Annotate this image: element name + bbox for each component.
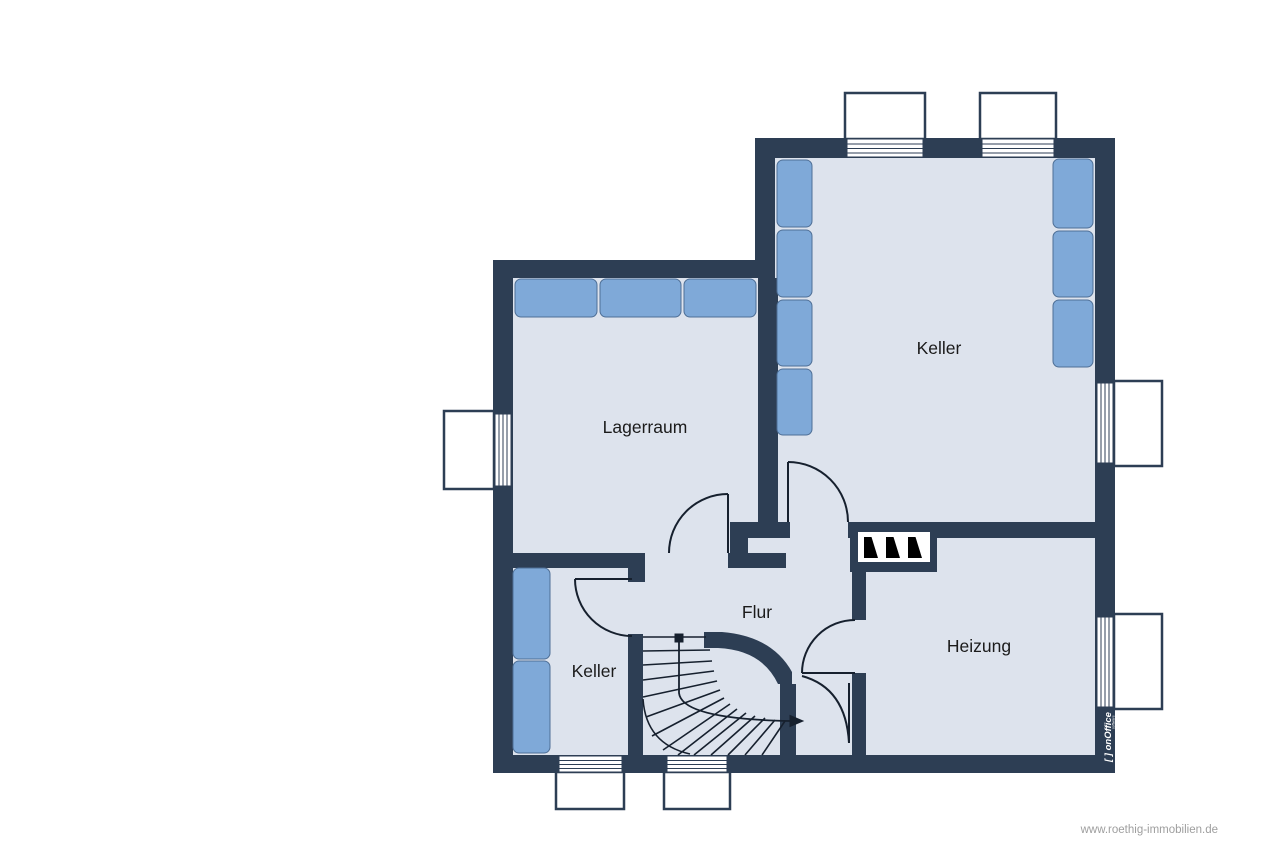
wall-lagerraum-keller	[758, 278, 778, 522]
shelf-lagerraum-2	[600, 279, 681, 317]
wall-flur-top	[728, 553, 786, 568]
shelf-keller2-2	[513, 661, 550, 753]
onoffice-logo: [ ] onOffice software	[1103, 711, 1116, 763]
window-top-1	[845, 93, 925, 157]
window-top-2	[980, 93, 1056, 157]
shelf-lagerraum-3	[684, 279, 756, 317]
floor-left-section	[513, 278, 775, 755]
window-right-keller	[1097, 381, 1162, 466]
shelf-keller-left-3	[777, 300, 812, 366]
shelf-keller-left-1	[777, 160, 812, 227]
wall-heizung-left-lower	[852, 673, 866, 755]
onoffice-logo-subtext: software	[1112, 715, 1116, 729]
room-label-keller-big: Keller	[917, 338, 962, 358]
wall-lagerraum-bottom	[493, 553, 645, 568]
shelf-keller-right-3	[1053, 300, 1093, 367]
shelf-keller-left-2	[777, 230, 812, 297]
window-bottom-1	[556, 756, 624, 809]
room-label-flur: Flur	[742, 602, 772, 622]
wall-keller-small-jamb	[628, 553, 645, 582]
window-bottom-2	[664, 756, 730, 809]
shelf-keller-right-2	[1053, 231, 1093, 297]
window-left-lagerraum	[444, 411, 511, 489]
shelf-keller2-1	[513, 568, 550, 659]
room-label-heizung: Heizung	[947, 636, 1011, 656]
floorplan-canvas: Keller Lagerraum Flur Keller Heizung [ ]…	[0, 0, 1263, 842]
room-label-lagerraum: Lagerraum	[603, 417, 688, 437]
shelf-lagerraum-1	[515, 279, 597, 317]
shelf-keller-left-4	[777, 369, 812, 435]
watermark-url: www.roethig-immobilien.de	[1080, 824, 1218, 836]
window-right-heizung	[1097, 614, 1162, 709]
chimney-symbol	[858, 532, 930, 562]
wall-keller-small-right	[628, 634, 643, 755]
shelf-keller-right-1	[1053, 159, 1093, 228]
floor-right-section	[775, 158, 1095, 755]
room-label-keller-small: Keller	[572, 661, 617, 681]
